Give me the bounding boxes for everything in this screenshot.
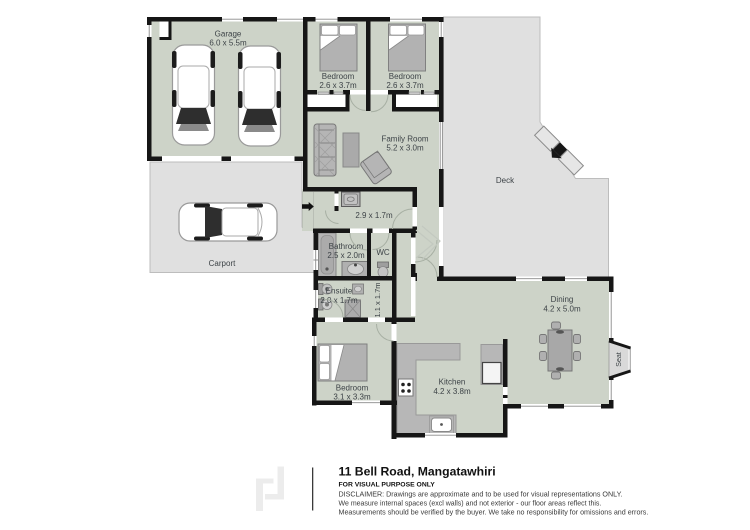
svg-text:WC: WC [376, 248, 390, 257]
svg-text:4.2 x 5.0m: 4.2 x 5.0m [543, 305, 581, 314]
svg-text:Kitchen: Kitchen [439, 378, 466, 387]
svg-text:We measure internal spaces (ex: We measure internal spaces (excl walls) … [339, 501, 602, 508]
svg-text:6.0 x 5.5m: 6.0 x 5.5m [209, 39, 247, 48]
svg-text:Bedroom: Bedroom [336, 384, 369, 393]
svg-text:Dining: Dining [551, 295, 574, 304]
svg-text:2.6 x 3.7m: 2.6 x 3.7m [386, 81, 424, 90]
svg-text:Bathroom: Bathroom [329, 242, 364, 251]
svg-text:FOR VISUAL PURPOSE ONLY: FOR VISUAL PURPOSE ONLY [339, 482, 436, 489]
svg-text:2.9 x 1.7m: 2.9 x 1.7m [355, 211, 393, 220]
svg-text:Family Room: Family Room [381, 135, 428, 144]
svg-text:Bedroom: Bedroom [322, 72, 355, 81]
svg-text:DISCLAIMER: Drawings are appr: DISCLAIMER: Drawings are approximate and… [339, 491, 623, 499]
svg-text:2.5 x 2.0m: 2.5 x 2.0m [327, 251, 365, 260]
svg-text:Deck: Deck [496, 176, 515, 185]
svg-text:4.2 x 3.8m: 4.2 x 3.8m [433, 387, 471, 396]
svg-text:5.2 x 3.0m: 5.2 x 3.0m [386, 144, 424, 153]
svg-text:Carport: Carport [209, 259, 236, 268]
svg-text:2.0 x 1.7m: 2.0 x 1.7m [320, 296, 358, 305]
svg-text:Measurements should be verifie: Measurements should be verified by the b… [339, 509, 649, 517]
svg-text:11 Bell Road, Mangatawhiri: 11 Bell Road, Mangatawhiri [339, 465, 496, 479]
svg-text:2.6 x 3.7m: 2.6 x 3.7m [319, 81, 357, 90]
svg-text:Ensuite: Ensuite [326, 287, 353, 296]
svg-text:Bedroom: Bedroom [389, 72, 422, 81]
svg-text:1.1 x 1.7m: 1.1 x 1.7m [373, 282, 382, 317]
svg-text:Garage: Garage [215, 30, 242, 39]
svg-text:3.1 x 3.3m: 3.1 x 3.3m [333, 393, 371, 402]
svg-text:Seat: Seat [616, 352, 623, 366]
